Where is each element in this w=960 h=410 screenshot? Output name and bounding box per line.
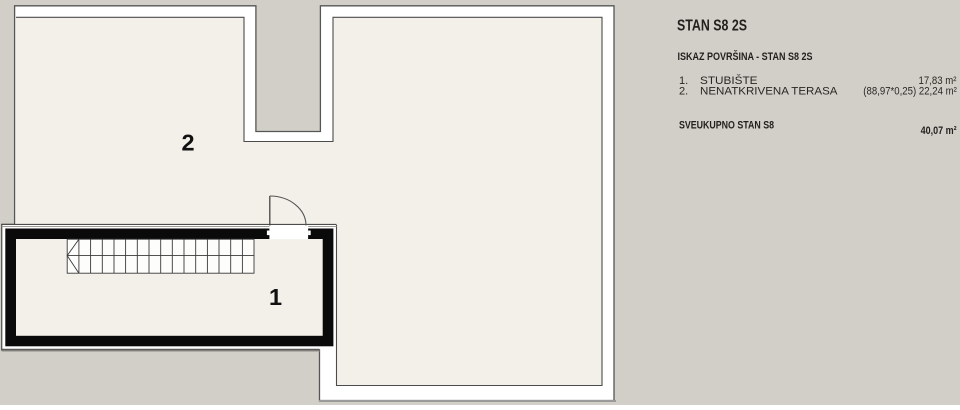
svg-text:ISKAZ POVRŠINA - STAN S8 2S: ISKAZ POVRŠINA - STAN S8 2S bbox=[678, 50, 813, 63]
svg-text:2: 2 bbox=[181, 129, 194, 155]
svg-text:NENATKRIVENA TERASA: NENATKRIVENA TERASA bbox=[700, 85, 838, 97]
svg-text:2.: 2. bbox=[679, 85, 688, 97]
svg-text:STAN S8 2S: STAN S8 2S bbox=[677, 18, 747, 35]
svg-text:(88,97*0,25) 22,24 m²: (88,97*0,25) 22,24 m² bbox=[863, 85, 957, 97]
svg-text:1: 1 bbox=[269, 284, 282, 310]
svg-text:40,07 m²: 40,07 m² bbox=[921, 125, 957, 137]
svg-text:SVEUKUPNO STAN S8: SVEUKUPNO STAN S8 bbox=[679, 120, 774, 132]
